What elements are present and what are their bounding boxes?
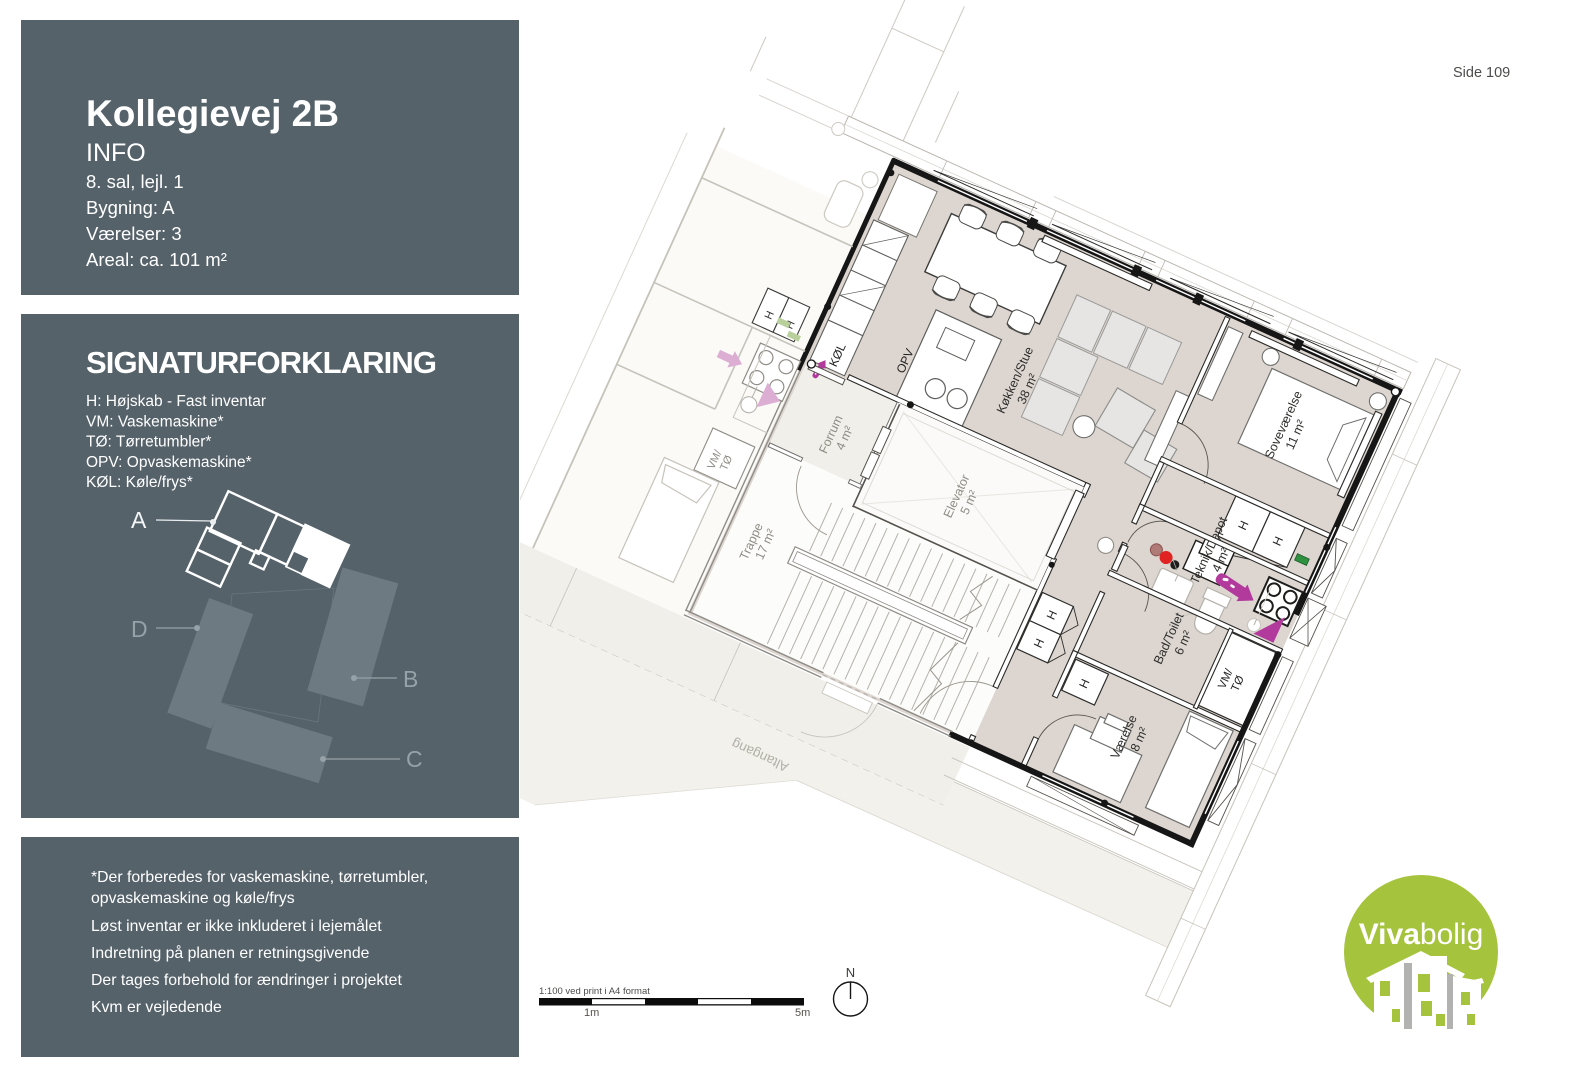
svg-text:Kvm er vejledende: Kvm er vejledende: [91, 999, 222, 1016]
svg-text:A: A: [131, 507, 147, 533]
svg-text:SIGNATURFORKLARING: SIGNATURFORKLARING: [86, 345, 437, 380]
svg-text:INFO: INFO: [86, 139, 146, 167]
svg-text:Der tages forbehold for ændrin: Der tages forbehold for ændringer i proj…: [91, 972, 402, 989]
svg-text:*Der forberedes for vaskemaski: *Der forberedes for vaskemaskine, tørret…: [91, 869, 428, 886]
svg-text:Kollegievej 2B: Kollegievej 2B: [86, 93, 339, 134]
svg-text:Areal: ca. 101 m²: Areal: ca. 101 m²: [86, 249, 227, 270]
svg-text:TØ: Tørretumbler*: TØ: Tørretumbler*: [86, 434, 211, 451]
svg-text:B: B: [403, 666, 418, 692]
svg-text:KØL: Køle/frys*: KØL: Køle/frys*: [86, 474, 193, 491]
svg-text:N: N: [846, 965, 855, 980]
svg-text:Løst inventar er ikke inkluder: Løst inventar er ikke inkluderet i lejem…: [91, 917, 382, 935]
svg-text:Vivabolig: Vivabolig: [1359, 918, 1484, 951]
svg-text:Side 109: Side 109: [1453, 65, 1510, 81]
svg-text:C: C: [406, 746, 423, 772]
svg-text:OPV: Opvaskemaskine*: OPV: Opvaskemaskine*: [86, 454, 252, 471]
svg-text:VM: Vaskemaskine*: VM: Vaskemaskine*: [86, 413, 224, 430]
svg-text:Indretning på planen er retnin: Indretning på planen er retningsgivende: [91, 944, 370, 962]
svg-text:1m: 1m: [584, 1007, 599, 1019]
svg-text:8. sal, lejl. 1: 8. sal, lejl. 1: [86, 171, 184, 192]
svg-text:Værelser: 3: Værelser: 3: [86, 223, 182, 244]
svg-text:opvaskemaskine og køle/frys: opvaskemaskine og køle/frys: [91, 890, 295, 907]
svg-text:H: Højskab - Fast inventar: H: Højskab - Fast inventar: [86, 393, 266, 410]
svg-text:1:100 ved print i A4 format: 1:100 ved print i A4 format: [539, 986, 650, 997]
svg-text:5m: 5m: [795, 1007, 810, 1019]
svg-text:Bygning: A: Bygning: A: [86, 197, 175, 218]
svg-text:D: D: [131, 616, 148, 642]
